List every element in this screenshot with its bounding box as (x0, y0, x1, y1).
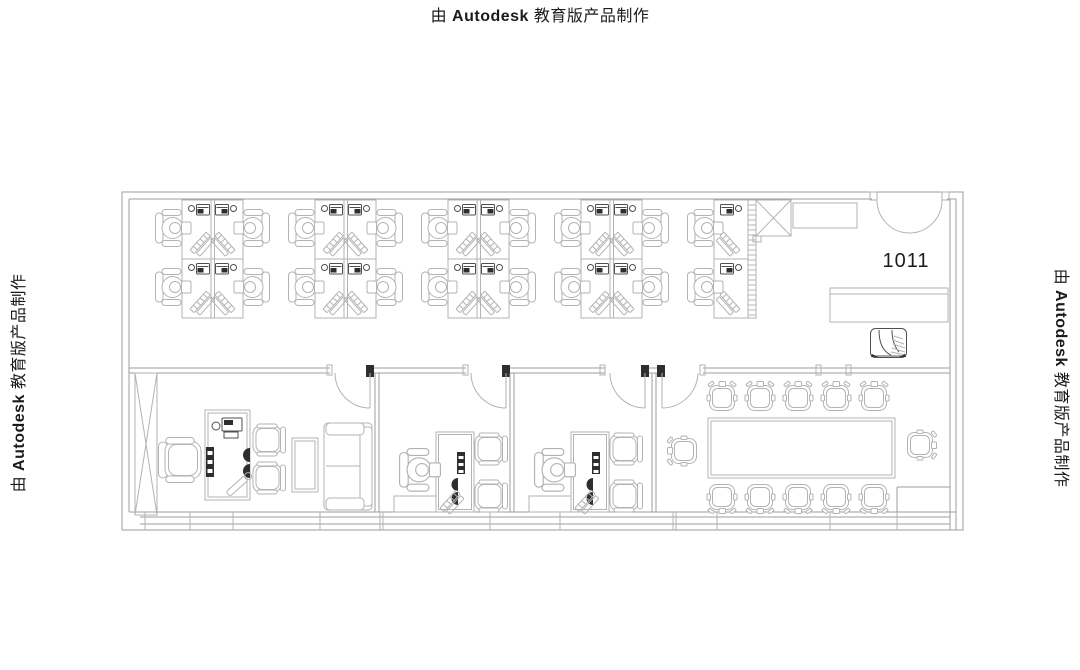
autocad-education-plot: 由 Autodesk 教育版产品制作 由 Autodesk 教育版产品制作 由 … (0, 0, 1080, 670)
private-office-2 (529, 432, 643, 516)
conference-chair-icon (783, 381, 813, 411)
floor-plan-drawing: 1011 (0, 0, 1080, 670)
double-door-icon (870, 192, 949, 233)
wardrobe-x-cabinet-icon (135, 373, 157, 515)
sofa-icon (324, 423, 372, 510)
open-office-area: 1011 (156, 200, 949, 358)
room-label: 1011 (882, 250, 929, 272)
corner-step (897, 487, 950, 512)
conference-table-icon (708, 418, 895, 478)
window-band (140, 512, 950, 530)
conference-chair-icon (908, 430, 938, 460)
office-doors (335, 373, 698, 408)
hatched-wall-icon (748, 200, 756, 318)
coffee-table-icon (292, 438, 318, 492)
door-swing-icon (471, 373, 506, 408)
sideboard-counter-icon (830, 288, 948, 322)
conference-chair-icon (821, 381, 851, 411)
door-swing-icon (610, 373, 645, 408)
conference-chair-row-bottom (707, 485, 889, 515)
shaft-x-box-icon (753, 200, 791, 242)
executive-desk (205, 410, 253, 500)
partition-wall (129, 365, 950, 377)
conference-chair-icon (707, 381, 737, 411)
guest-chair-icon (253, 462, 286, 494)
executive-office (135, 373, 372, 515)
side-table (793, 203, 857, 228)
conference-room (667, 381, 950, 514)
private-office-1 (394, 432, 508, 516)
executive-chair-icon (159, 438, 202, 483)
door-swing-icon (662, 373, 698, 408)
guest-chair-icon (253, 424, 286, 456)
conference-chair-icon (745, 381, 775, 411)
conference-chair-icon (667, 436, 697, 466)
conference-chair-icon (859, 381, 889, 411)
door-swing-icon (335, 373, 370, 408)
